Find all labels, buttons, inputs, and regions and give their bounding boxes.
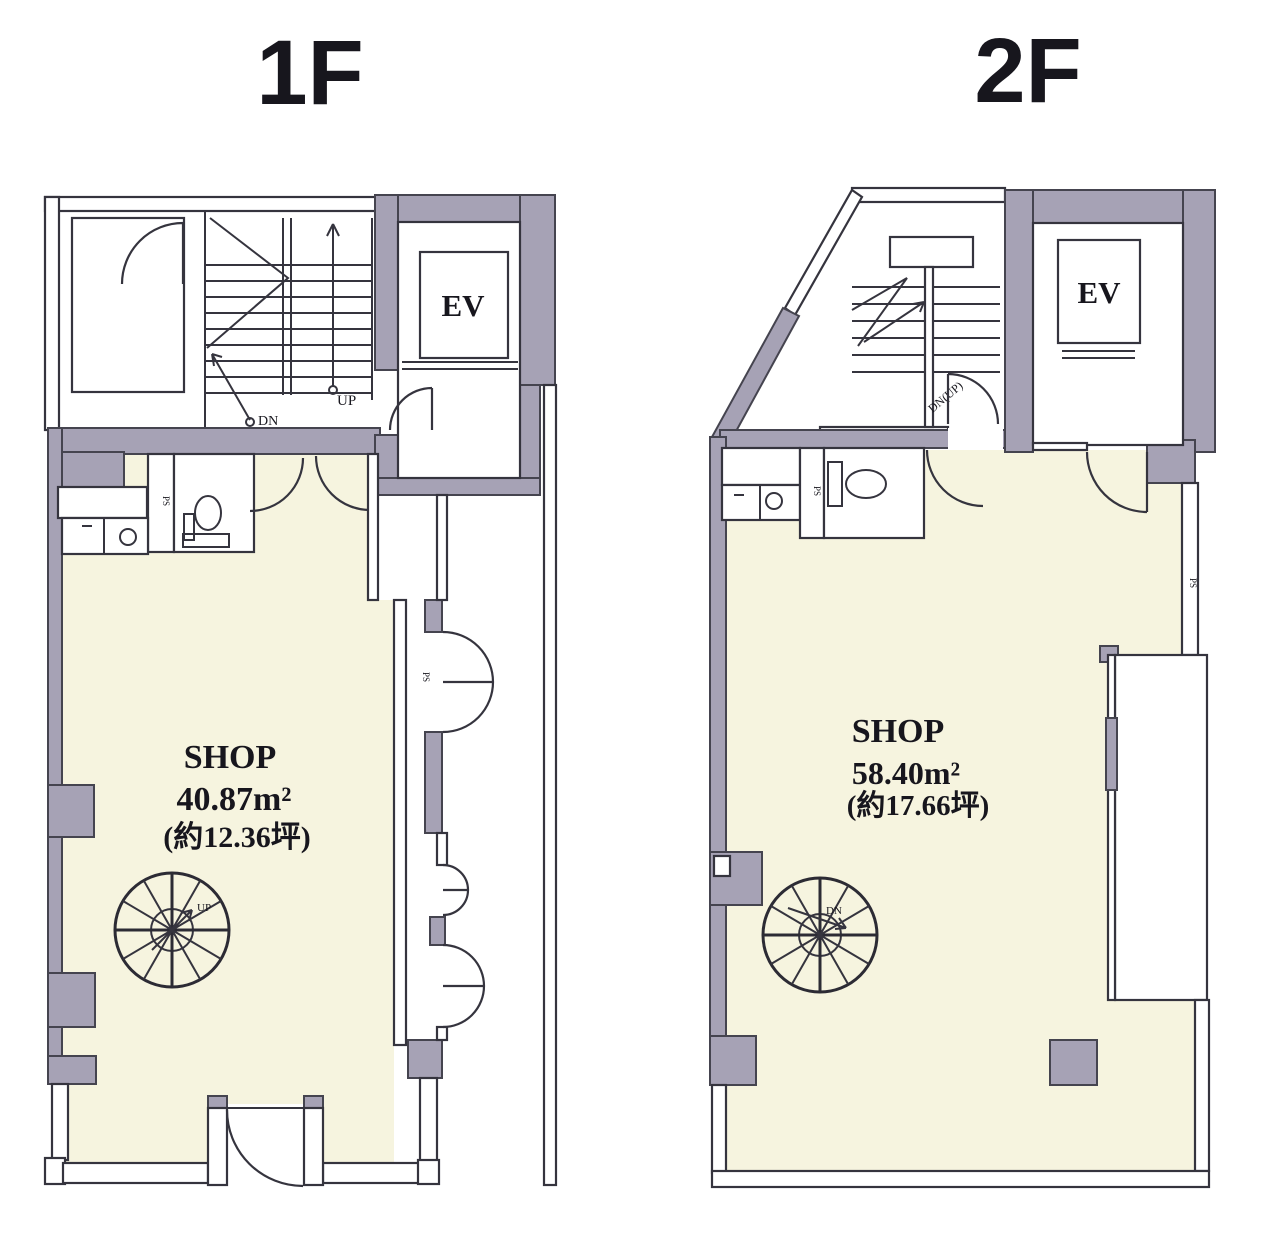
ps-label: PS (421, 672, 431, 682)
wall (48, 428, 62, 1060)
wall (50, 428, 380, 454)
wall (1005, 190, 1033, 452)
wall (375, 195, 398, 370)
wall (425, 600, 442, 632)
pillar (1050, 1040, 1097, 1085)
elevator-1f: EV (390, 222, 520, 478)
wall (45, 197, 59, 430)
toilet-room (174, 454, 254, 552)
wall (520, 385, 540, 478)
stair-up-label: UP (337, 393, 356, 409)
alcove (1115, 655, 1207, 1000)
floor2-title: 2F (974, 20, 1081, 122)
wall (1183, 190, 1215, 452)
wall (1106, 718, 1117, 790)
pillar (710, 1036, 756, 1085)
chamfer-wall (712, 308, 799, 446)
wall (418, 1160, 439, 1184)
floor-plan-1f: 1F UP DN (45, 22, 556, 1186)
wall (520, 195, 555, 385)
spiral-staircase-1f: UP (115, 873, 229, 987)
swing-door-set (443, 632, 493, 1027)
ps-label: PS (161, 496, 171, 506)
shop-tsubo: (約12.36坪) (163, 821, 310, 854)
floor1-title: 1F (256, 22, 363, 124)
ps-label: PS (1188, 578, 1198, 588)
wall (394, 600, 406, 1045)
wall (1033, 443, 1087, 450)
stair-dn-label: DN (258, 414, 278, 429)
door-arc (443, 632, 493, 732)
down-arrow (212, 354, 250, 420)
window-wall (1182, 483, 1198, 655)
chamfer-wall (785, 190, 862, 315)
spiral-label: DN (826, 905, 842, 917)
stair-landing (890, 237, 973, 267)
wall (437, 833, 447, 865)
shop-name: SHOP (852, 713, 945, 750)
floor-plan-2f: 2F DN(UP) (710, 20, 1215, 1187)
door-arc (443, 945, 484, 1027)
boundary-line (544, 385, 556, 1185)
wall (1108, 655, 1115, 1000)
shop-tsubo: (約17.66坪) (847, 788, 990, 822)
wall (425, 732, 442, 833)
window-wall (712, 1171, 1209, 1187)
floor-plan-page: 1F UP DN (0, 0, 1280, 1242)
window-wall (52, 1084, 68, 1160)
pillar (48, 1056, 96, 1084)
staircase-1f: UP DN (205, 218, 372, 429)
wall (375, 478, 540, 495)
pillar (48, 973, 95, 1027)
entrance-post (208, 1108, 227, 1185)
stair-break-line (852, 278, 907, 346)
ps-label: PS (812, 486, 822, 496)
window-wall (1195, 1000, 1209, 1171)
machine-room (72, 218, 184, 392)
wall (368, 454, 378, 600)
window-wall (712, 1085, 726, 1173)
shop-area: 58.40m² (852, 755, 960, 791)
staircase-2f: DN(UP) (852, 237, 1000, 427)
wall (62, 452, 124, 488)
elevator-label: EV (441, 288, 485, 323)
wall (430, 917, 445, 945)
shop-name: SHOP (184, 739, 277, 776)
wall (437, 1027, 447, 1040)
sink-counter (722, 448, 800, 485)
storefront-window (323, 1163, 422, 1183)
elevator-label: EV (1077, 275, 1121, 310)
spiral-staircase-2f: DN (763, 878, 877, 992)
wall (437, 495, 447, 600)
wall (45, 197, 377, 211)
entrance-post (304, 1108, 323, 1185)
pillar (408, 1040, 442, 1078)
wall (710, 437, 726, 1085)
spiral-label: UP (197, 902, 211, 914)
pillar (48, 785, 94, 837)
window-wall (420, 1078, 437, 1162)
wall (1147, 440, 1195, 483)
wall (852, 188, 1005, 202)
shop-area: 40.87m² (176, 781, 291, 818)
door-arc (122, 223, 183, 284)
storefront-window (63, 1163, 208, 1183)
door-arc (443, 865, 468, 915)
sink-counter (58, 487, 147, 518)
